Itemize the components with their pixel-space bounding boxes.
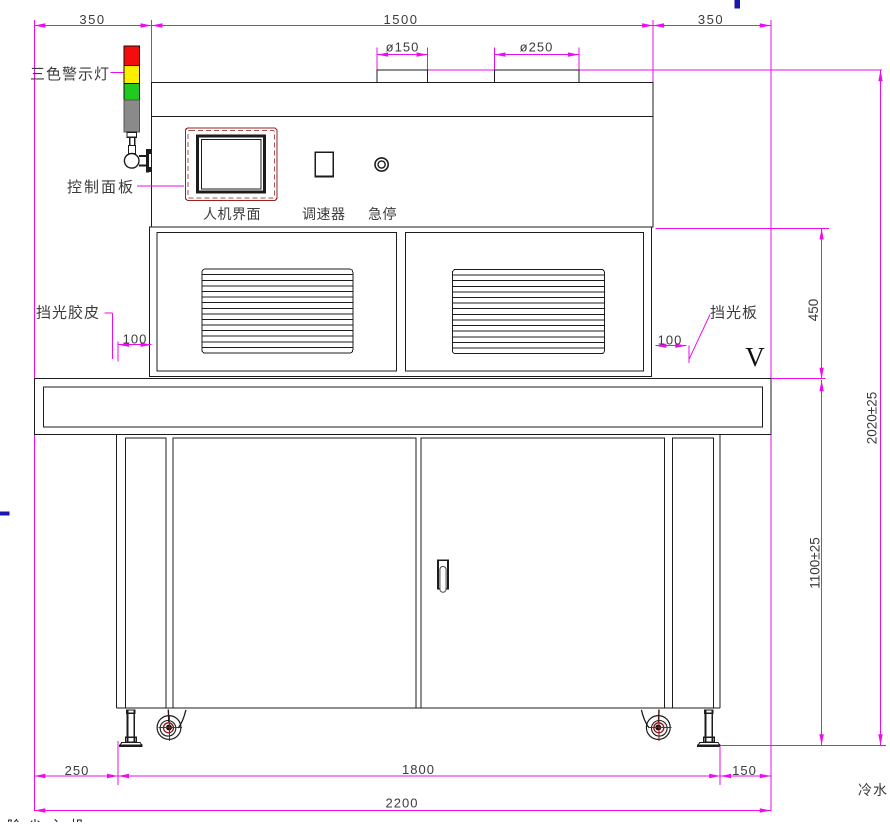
svg-text:2020±25: 2020±25 — [865, 392, 880, 444]
svg-text:挡光板: 挡光板 — [710, 304, 758, 322]
svg-text:急停: 急停 — [368, 206, 397, 222]
svg-text:450: 450 — [806, 299, 821, 322]
svg-text:2200: 2200 — [386, 796, 419, 811]
svg-text:除尘主机: 除尘主机 — [7, 818, 91, 822]
svg-text:250: 250 — [65, 763, 90, 778]
svg-text:调速器: 调速器 — [302, 206, 346, 222]
svg-text:挡光胶皮: 挡光胶皮 — [36, 305, 100, 322]
svg-text:1100±25: 1100±25 — [808, 537, 823, 588]
svg-text:ø150: ø150 — [386, 40, 420, 55]
svg-text:150: 150 — [732, 763, 757, 778]
svg-text:人机界面: 人机界面 — [203, 206, 261, 222]
svg-text:350: 350 — [698, 12, 724, 27]
svg-text:V: V — [745, 342, 765, 372]
svg-text:三色警示灯: 三色警示灯 — [30, 66, 110, 83]
svg-text:350: 350 — [79, 12, 105, 27]
svg-text:ø250: ø250 — [520, 40, 554, 55]
svg-text:1500: 1500 — [384, 12, 419, 27]
svg-text:1800: 1800 — [402, 762, 435, 777]
svg-text:控制面板: 控制面板 — [67, 178, 135, 196]
svg-text:100: 100 — [123, 332, 148, 347]
svg-text:冷水: 冷水 — [858, 782, 888, 798]
svg-text:100: 100 — [658, 333, 683, 348]
